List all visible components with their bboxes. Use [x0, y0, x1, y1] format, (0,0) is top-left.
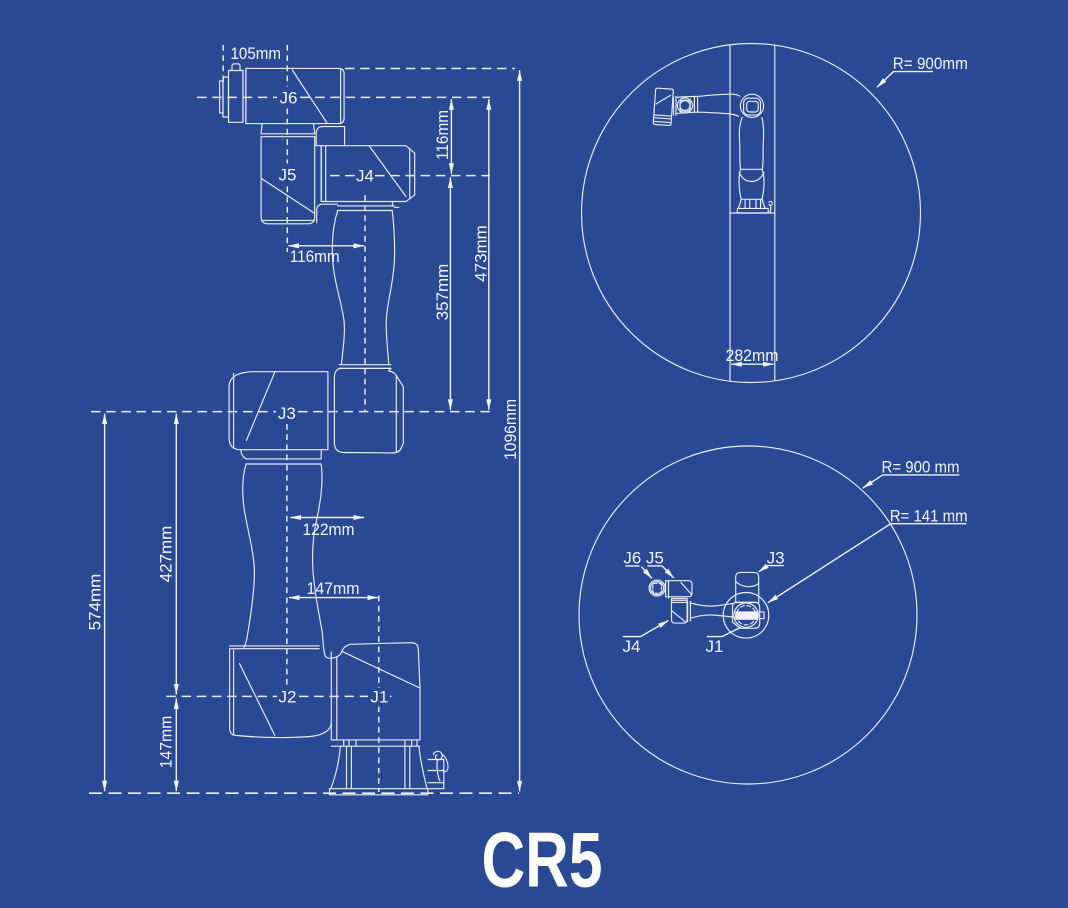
svg-text:J5: J5	[279, 165, 297, 184]
svg-text:J3: J3	[767, 549, 785, 568]
svg-text:R= 900 mm: R= 900 mm	[882, 458, 960, 477]
svg-text:J5: J5	[646, 549, 664, 568]
svg-text:473mm: 473mm	[472, 225, 491, 282]
svg-text:1096mm: 1096mm	[501, 399, 520, 460]
svg-text:R= 900mm: R= 900mm	[893, 54, 968, 73]
svg-text:282mm: 282mm	[726, 346, 779, 365]
svg-text:J3: J3	[278, 404, 296, 423]
svg-text:122mm: 122mm	[303, 520, 355, 539]
svg-text:147mm: 147mm	[307, 579, 360, 598]
svg-text:J6: J6	[280, 89, 298, 108]
svg-text:116mm: 116mm	[433, 110, 452, 160]
svg-text:147mm: 147mm	[157, 716, 176, 769]
svg-text:J4: J4	[623, 637, 641, 656]
svg-text:J2: J2	[279, 688, 297, 707]
svg-text:574mm: 574mm	[86, 574, 105, 631]
svg-text:357mm: 357mm	[433, 264, 452, 321]
svg-text:R= 141 mm: R= 141 mm	[890, 507, 968, 526]
svg-text:CR5: CR5	[482, 816, 603, 904]
svg-text:J4: J4	[356, 167, 374, 186]
svg-text:J1: J1	[370, 688, 388, 707]
svg-text:116mm: 116mm	[290, 247, 340, 266]
svg-text:427mm: 427mm	[157, 526, 176, 583]
svg-text:105mm: 105mm	[231, 44, 282, 63]
svg-text:J6: J6	[623, 549, 641, 568]
svg-text:J1: J1	[706, 637, 724, 656]
